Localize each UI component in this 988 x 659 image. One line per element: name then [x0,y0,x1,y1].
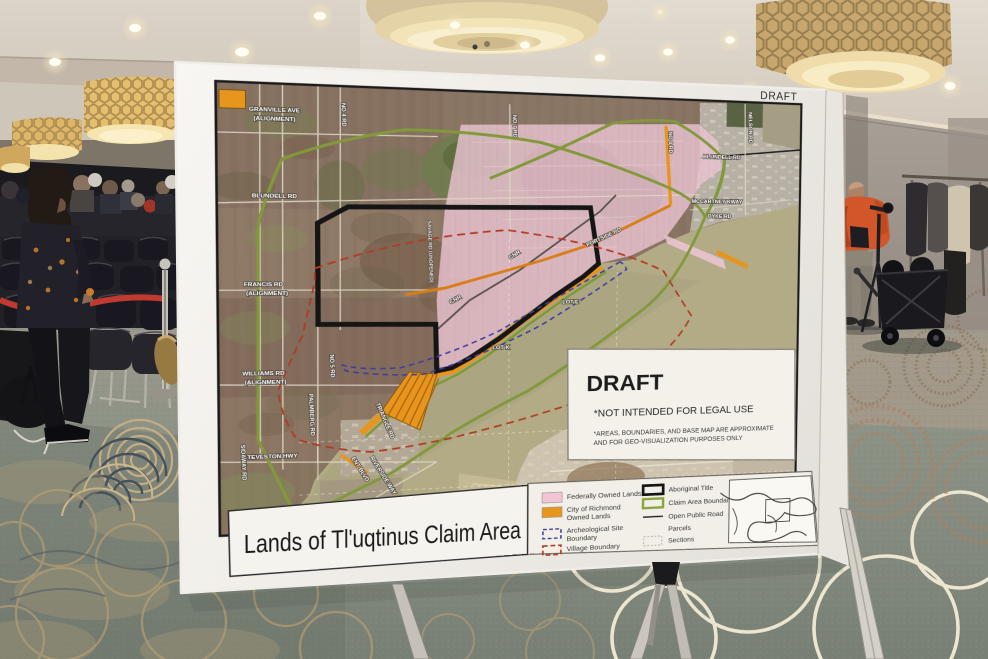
svg-text:Parcels: Parcels [668,523,691,532]
svg-text:Boundary: Boundary [567,533,598,543]
svg-text:FRANCIS RD: FRANCIS RD [244,282,284,288]
svg-text:DRAFT: DRAFT [586,370,664,396]
svg-text:NO 8 RD: NO 8 RD [667,131,673,153]
svg-text:MCCARTNEY KWAY: MCCARTNEY KWAY [692,199,743,206]
svg-text:(ALIGNMENT): (ALIGNMENT) [246,291,288,297]
svg-text:LOT K: LOT K [492,345,510,351]
svg-text:BLUNDELL RD: BLUNDELL RD [703,154,741,161]
svg-text:DYKE RD: DYKE RD [708,214,732,220]
svg-text:LOT E: LOT E [562,299,579,305]
svg-text:NELSON RD: NELSON RD [747,112,753,144]
svg-text:(ALIGNMENT): (ALIGNMENT) [245,379,287,386]
svg-text:BLUNDELL RD: BLUNDELL RD [252,193,297,200]
svg-text:NO 5 RD: NO 5 RD [328,354,336,378]
svg-text:(ALIGNMENT): (ALIGNMENT) [253,115,295,123]
svg-text:NO 4 RD: NO 4 RD [339,103,347,127]
svg-text:WILLIAMS RD: WILLIAMS RD [242,370,285,377]
svg-text:NO 7 RD: NO 7 RD [511,115,518,138]
svg-text:Sections: Sections [668,535,694,545]
svg-text:DRAFT: DRAFT [760,90,797,103]
